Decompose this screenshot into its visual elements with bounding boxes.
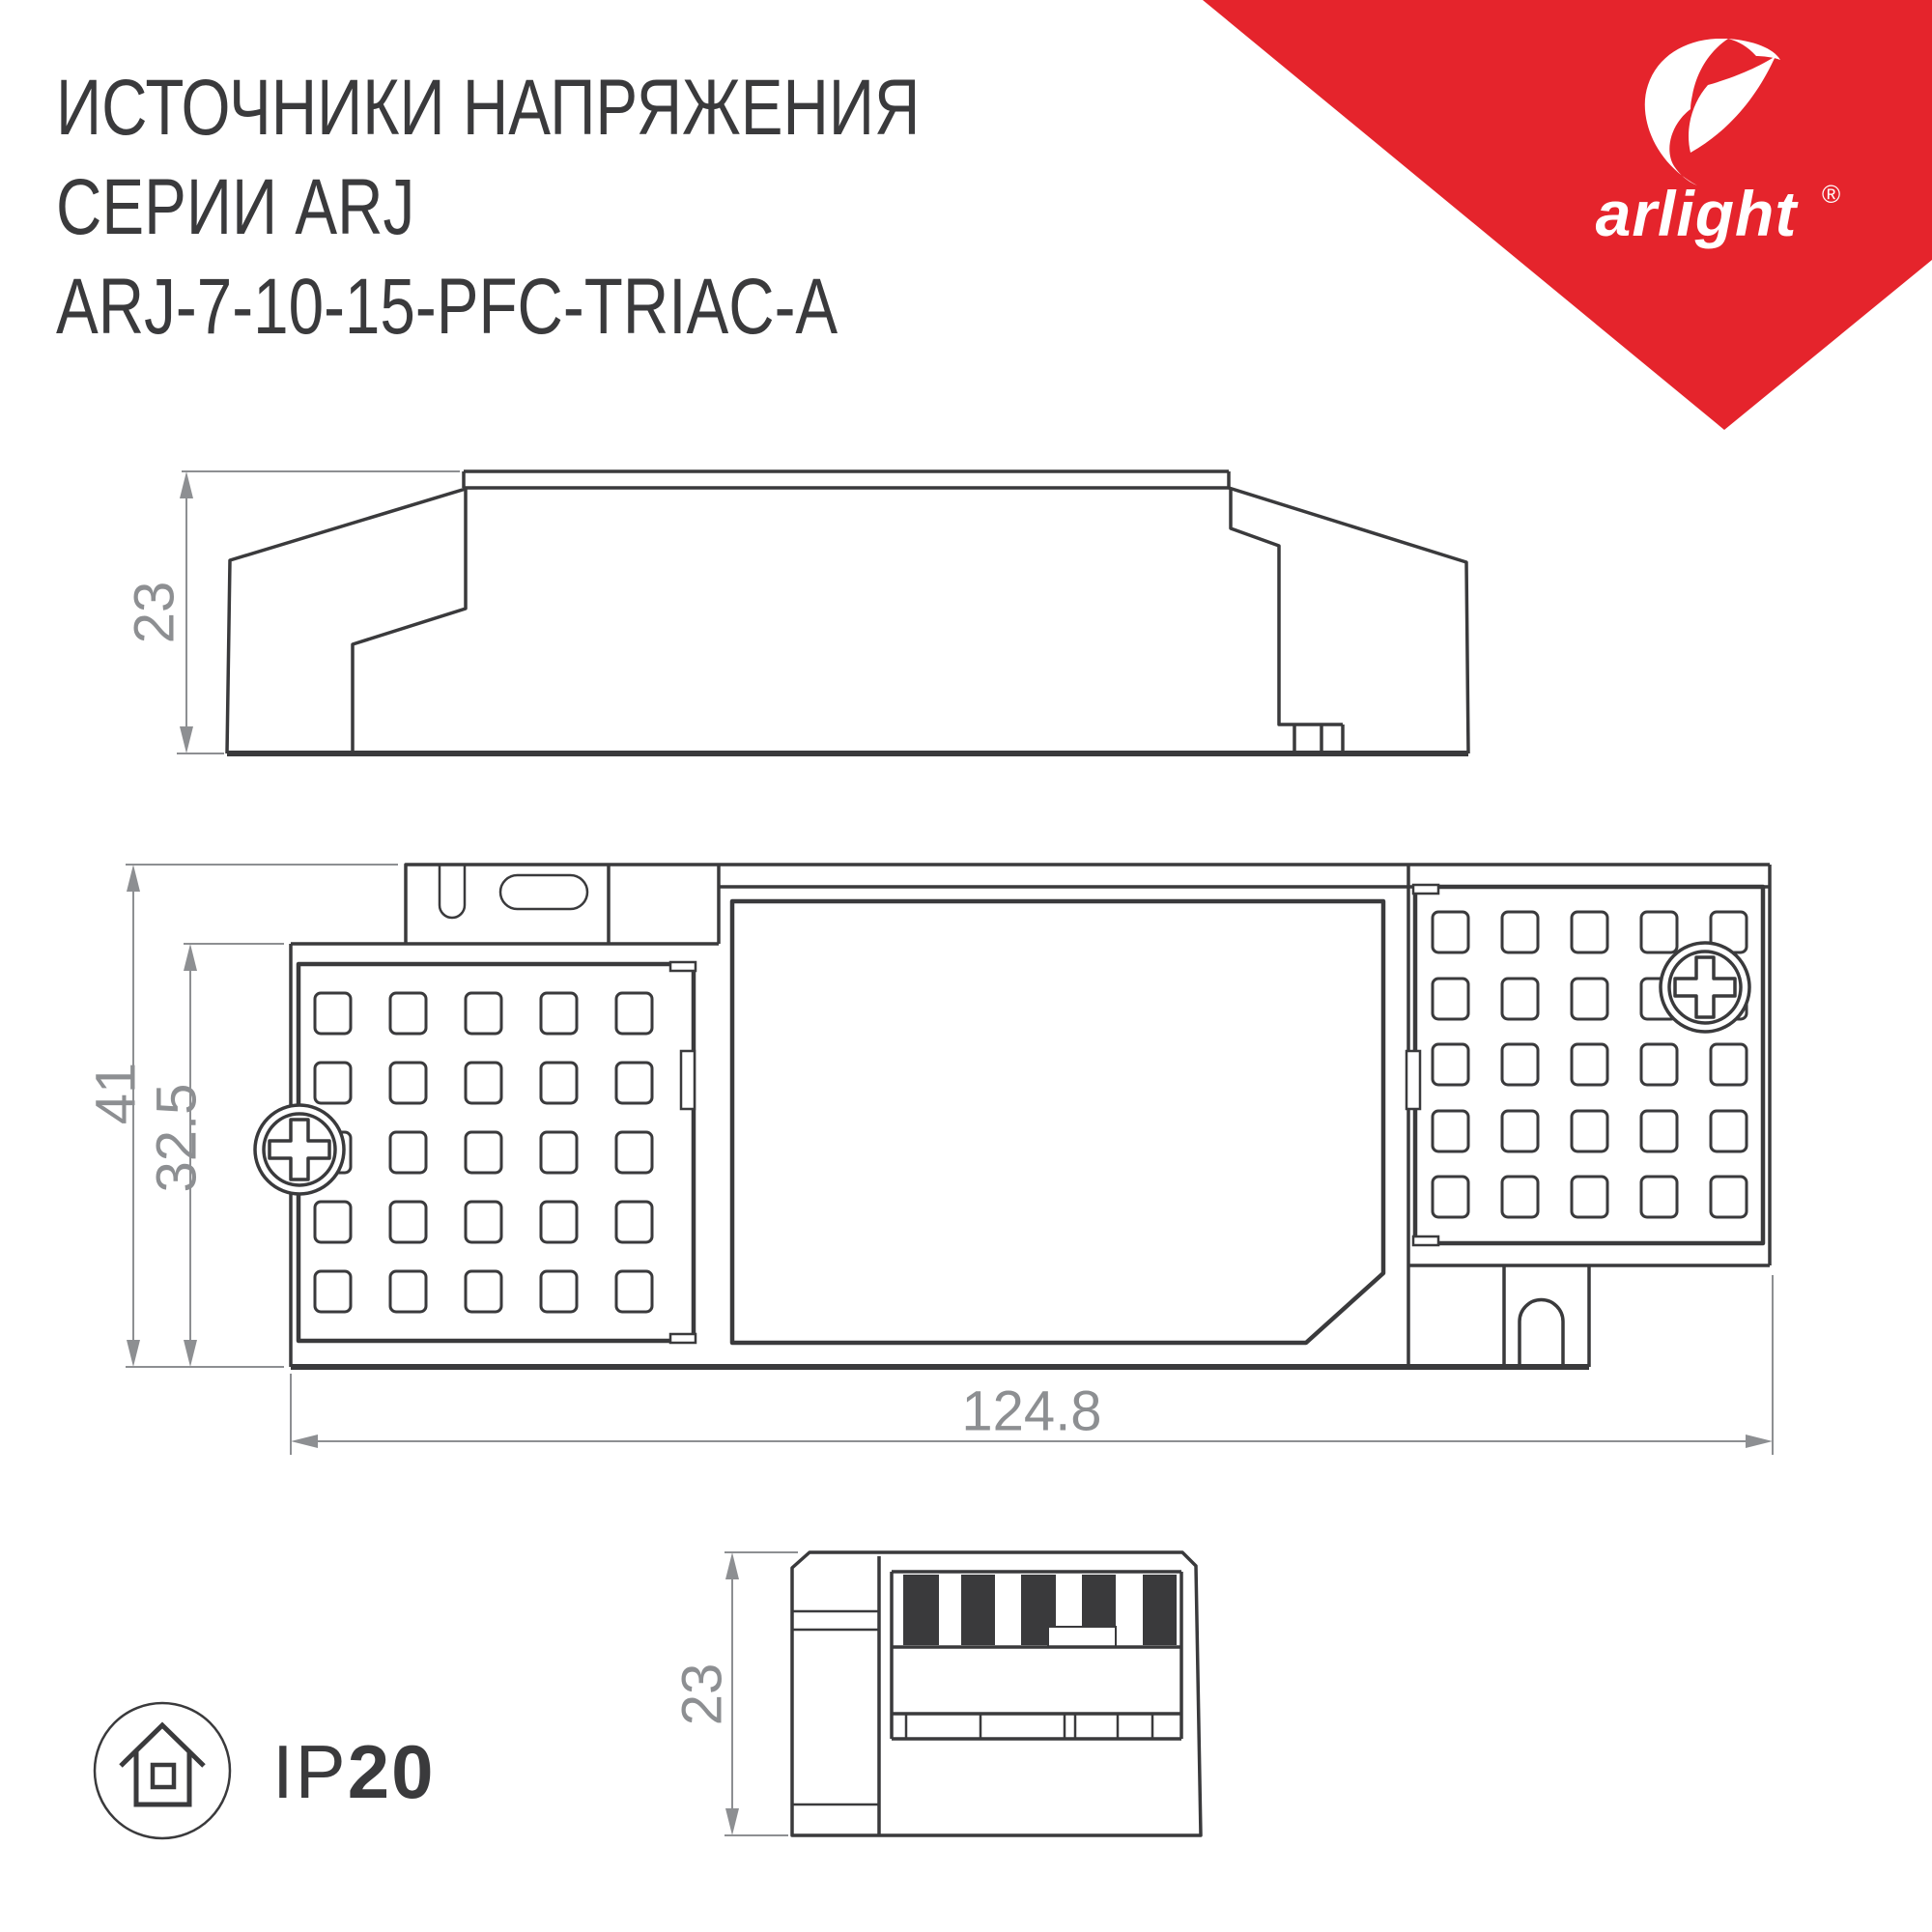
u-notch xyxy=(1520,1300,1563,1365)
ip20-house-icon xyxy=(95,1703,230,1838)
dimension-label-inner-width: 32.5 xyxy=(146,1084,209,1193)
ip-rating-badge: IP20 xyxy=(272,1734,435,1809)
end-height-dimension: 23 xyxy=(671,1552,799,1835)
component-window xyxy=(732,901,1383,1343)
keyhole-slot xyxy=(440,866,587,918)
terminal-block xyxy=(892,1572,1181,1739)
dimension-label-overall-width: 41 xyxy=(85,1063,148,1125)
left-grille-panel xyxy=(255,962,696,1343)
dimension-label-length: 124.8 xyxy=(961,1380,1101,1443)
ip-prefix: IP xyxy=(272,1729,348,1814)
phillips-screw-icon xyxy=(255,1105,344,1194)
dimension-label-end-height: 23 xyxy=(671,1663,734,1726)
dimension-label-side-height: 23 xyxy=(124,582,186,644)
latch-tab xyxy=(681,1051,695,1109)
right-grille-panel xyxy=(1406,885,1763,1245)
end-view-drawing: 23 xyxy=(671,1552,1202,1835)
vent-grid xyxy=(315,993,652,1312)
phillips-screw-icon xyxy=(1661,943,1749,1032)
ip-value: 20 xyxy=(348,1729,436,1814)
top-view-drawing: 41 32.5 124.8 xyxy=(85,865,1774,1455)
side-height-dimension: 23 xyxy=(124,471,461,753)
side-view-drawing: 23 xyxy=(124,471,1469,753)
latch-tab xyxy=(1406,1051,1420,1109)
